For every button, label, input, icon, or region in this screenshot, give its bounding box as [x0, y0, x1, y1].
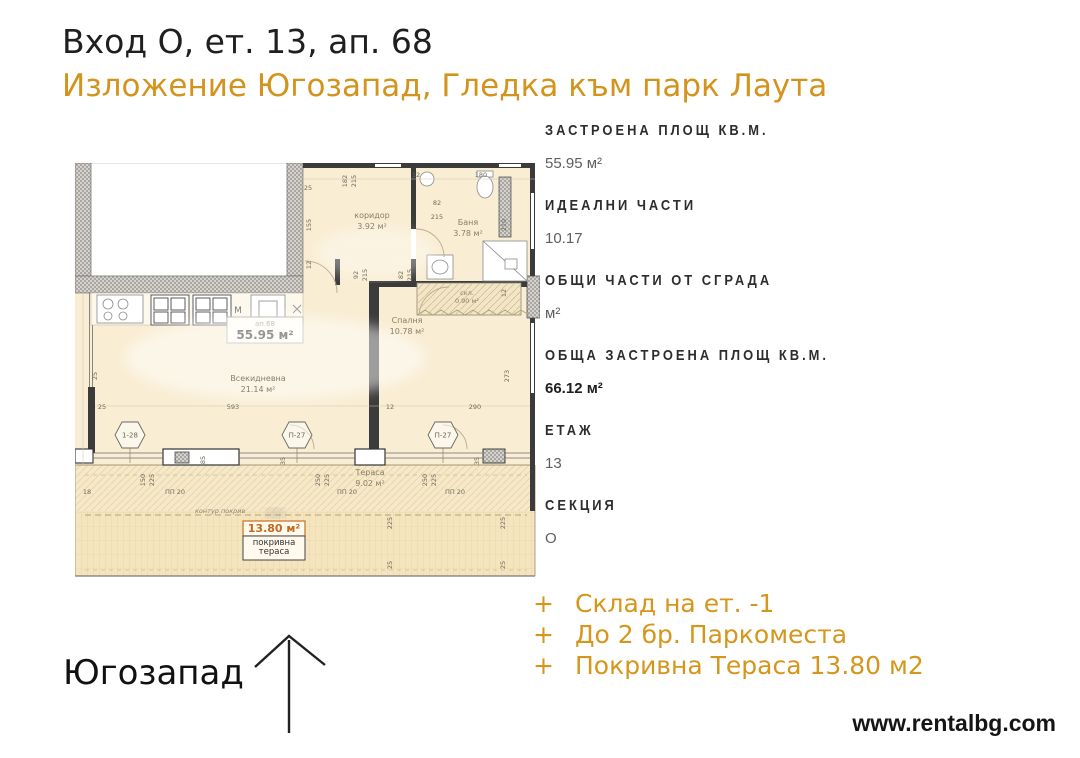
detail-label: ЕТАЖ	[545, 422, 594, 439]
room-area: 10.78 м²	[390, 327, 425, 336]
page-title: Вход О, ет. 13, ап. 68	[62, 22, 433, 61]
roof-contour-note: контур покрив	[195, 507, 245, 515]
detail-value: 10.17	[545, 230, 583, 247]
detail-label: ЗАСТРОЕНА ПЛОЩ КВ.М.	[545, 122, 769, 139]
shower-icon	[483, 241, 527, 281]
detail-label: СЕКЦИЯ	[545, 497, 617, 514]
plan-dimension: 82	[397, 271, 405, 279]
plan-dimension: 290	[469, 403, 481, 411]
room-name: коридор	[354, 211, 390, 220]
plan-dimension: 155	[305, 219, 313, 231]
plan-dimension: 25	[304, 184, 312, 192]
plan-dimension: 210	[500, 219, 508, 231]
roof-terrace-name: тераса	[259, 547, 290, 557]
extra-text: Покривна Тераса 13.80 м2	[575, 651, 924, 680]
extra-text: До 2 бр. Паркоместа	[575, 620, 847, 649]
plan-dimension: 215	[350, 175, 358, 187]
plan-dimension: 150	[139, 474, 147, 486]
plan-dimension: 593	[227, 403, 239, 411]
detail-row: ОБЩИ ЧАСТИ ОТ СГРАДАм²	[545, 272, 975, 347]
plan-dimension: 225	[430, 474, 438, 486]
plan-dimension: 225	[386, 517, 394, 529]
room-name: Всекидневна	[230, 374, 285, 383]
plan-dimension: 225	[148, 474, 156, 486]
detail-value: О	[545, 530, 557, 547]
room-area: 0.90 м²	[455, 297, 479, 305]
compass-label: Югозапад	[63, 653, 244, 693]
panel-marker-label: П-27	[435, 432, 452, 440]
room-name: скл.	[460, 289, 474, 297]
room-name: Спалня	[392, 316, 423, 325]
plan-dimension: 18	[83, 488, 91, 496]
extra-text: Склад на ет. -1	[575, 589, 774, 618]
void-block	[75, 163, 303, 293]
plan-dimension: 25	[499, 561, 507, 569]
plus-icon: +	[533, 588, 575, 619]
plan-dimension: 85	[199, 456, 207, 464]
extra-item: +Склад на ет. -1	[533, 588, 924, 619]
north-arrow-icon	[236, 615, 346, 740]
plan-dimension: ПП 20	[165, 488, 185, 496]
extras-list: +Склад на ет. -1+До 2 бр. Паркоместа+Пок…	[533, 588, 924, 681]
detail-value: 66.12 м²	[545, 380, 603, 397]
roof-terrace-label: 13.80 м² покривна тераса	[243, 521, 305, 560]
stove-icon	[97, 295, 143, 323]
plan-dimension: ПП 20	[337, 488, 357, 496]
detail-row: ОБЩА ЗАСТРОЕНА ПЛОЩ КВ.М.66.12 м²	[545, 347, 975, 422]
plan-dimension: 35	[279, 457, 287, 465]
detail-value: 55.95 м²	[545, 155, 602, 172]
plan-dimension: 82	[433, 199, 441, 207]
room-area: 3.92 м²	[357, 222, 387, 231]
plan-dimension: 25	[386, 561, 394, 569]
plan-dimension: 12	[386, 403, 394, 411]
plan-dimension: 273	[503, 370, 511, 382]
website-link[interactable]: www.rentalbg.com	[852, 710, 1056, 737]
brochure-page: Вход О, ет. 13, ап. 68 Изложение Югозапа…	[0, 0, 1080, 758]
room-area: 21.14 м²	[241, 385, 276, 394]
plan-dimension: 25	[98, 403, 106, 411]
plan-dimension: 180	[475, 171, 487, 179]
detail-label: ИДЕАЛНИ ЧАСТИ	[545, 197, 696, 214]
plan-dimension: 215	[406, 269, 414, 281]
plan-dimension: 25	[91, 372, 99, 380]
extra-item: +До 2 бр. Паркоместа	[533, 619, 924, 650]
plan-dimension: 250	[421, 474, 429, 486]
plan-dimension: ПП 20	[445, 488, 465, 496]
kitchen-letter: М	[234, 306, 242, 316]
panel-marker-label: 1-28	[122, 432, 138, 440]
room-name: Баня	[458, 218, 479, 227]
plan-dimension: 182	[341, 175, 349, 187]
detail-value: м²	[545, 305, 560, 322]
plan-dimension: 225	[323, 474, 331, 486]
plan-dimension: 35	[473, 457, 481, 465]
detail-row: ЗАСТРОЕНА ПЛОЩ КВ.М.55.95 м²	[545, 122, 975, 197]
detail-label: ОБЩИ ЧАСТИ ОТ СГРАДА	[545, 272, 772, 289]
plus-icon: +	[533, 650, 575, 681]
plan-dimension: 12	[500, 289, 508, 297]
plan-dimension: 250	[314, 474, 322, 486]
room-area: 9.02 м²	[355, 479, 385, 488]
plan-dimension: 215	[431, 213, 443, 221]
plan-dimension: 92	[352, 271, 360, 279]
roof-terrace-area: 13.80 м²	[248, 522, 301, 535]
detail-row: ЕТАЖ13	[545, 422, 975, 497]
extra-item: +Покривна Тераса 13.80 м2	[533, 650, 924, 681]
plan-dimension: 215	[361, 269, 369, 281]
floorplan: М	[75, 163, 540, 578]
floorplan-svg: М	[75, 163, 540, 578]
plan-dimension: 12	[305, 261, 313, 269]
page-subtitle: Изложение Югозапад, Гледка към парк Лаут…	[62, 68, 827, 104]
detail-value: 13	[545, 455, 562, 472]
plan-dimension: 12	[412, 171, 420, 179]
room-name: Тераса	[354, 468, 384, 477]
panel-marker-label: П-27	[289, 432, 306, 440]
detail-row: ИДЕАЛНИ ЧАСТИ10.17	[545, 197, 975, 272]
detail-label: ОБЩА ЗАСТРОЕНА ПЛОЩ КВ.М.	[545, 347, 829, 364]
detail-row: СЕКЦИЯО	[545, 497, 975, 572]
room-area: 3.78 м²	[453, 229, 483, 238]
details-panel: ЗАСТРОЕНА ПЛОЩ КВ.М.55.95 м²ИДЕАЛНИ ЧАСТ…	[545, 122, 975, 572]
plus-icon: +	[533, 619, 575, 650]
plan-dimension: 225	[499, 517, 507, 529]
